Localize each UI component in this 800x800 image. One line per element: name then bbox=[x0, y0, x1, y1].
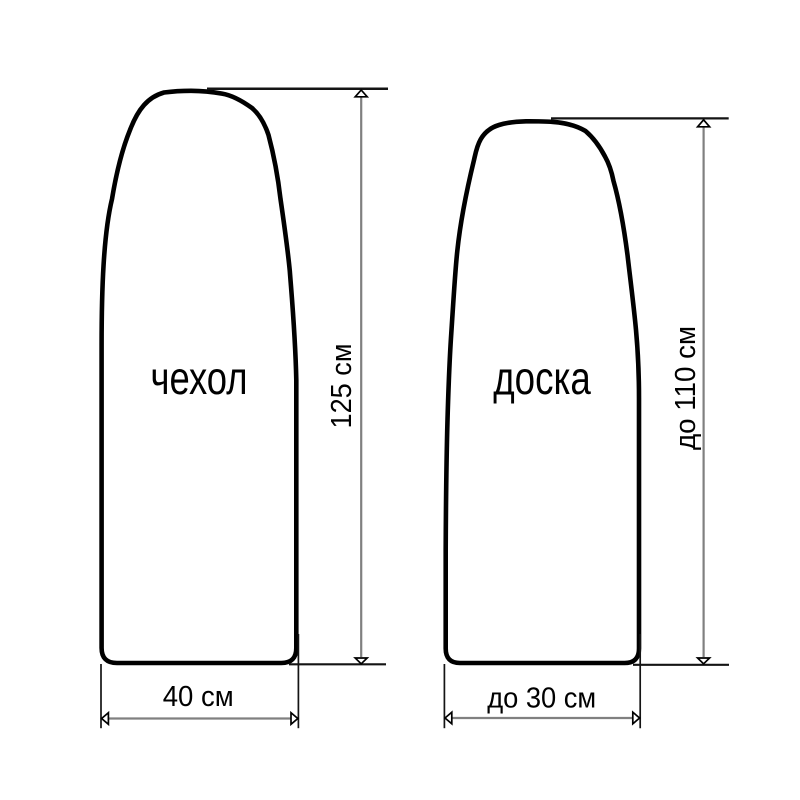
svg-text:чехол: чехол bbox=[151, 352, 248, 404]
svg-text:доска: доска bbox=[493, 352, 591, 404]
svg-text:40 см: 40 см bbox=[163, 681, 234, 713]
svg-text:до 30 см: до 30 см bbox=[487, 683, 596, 715]
svg-text:125 см: 125 см bbox=[326, 344, 358, 429]
svg-text:до 110 см: до 110 см bbox=[670, 326, 702, 450]
